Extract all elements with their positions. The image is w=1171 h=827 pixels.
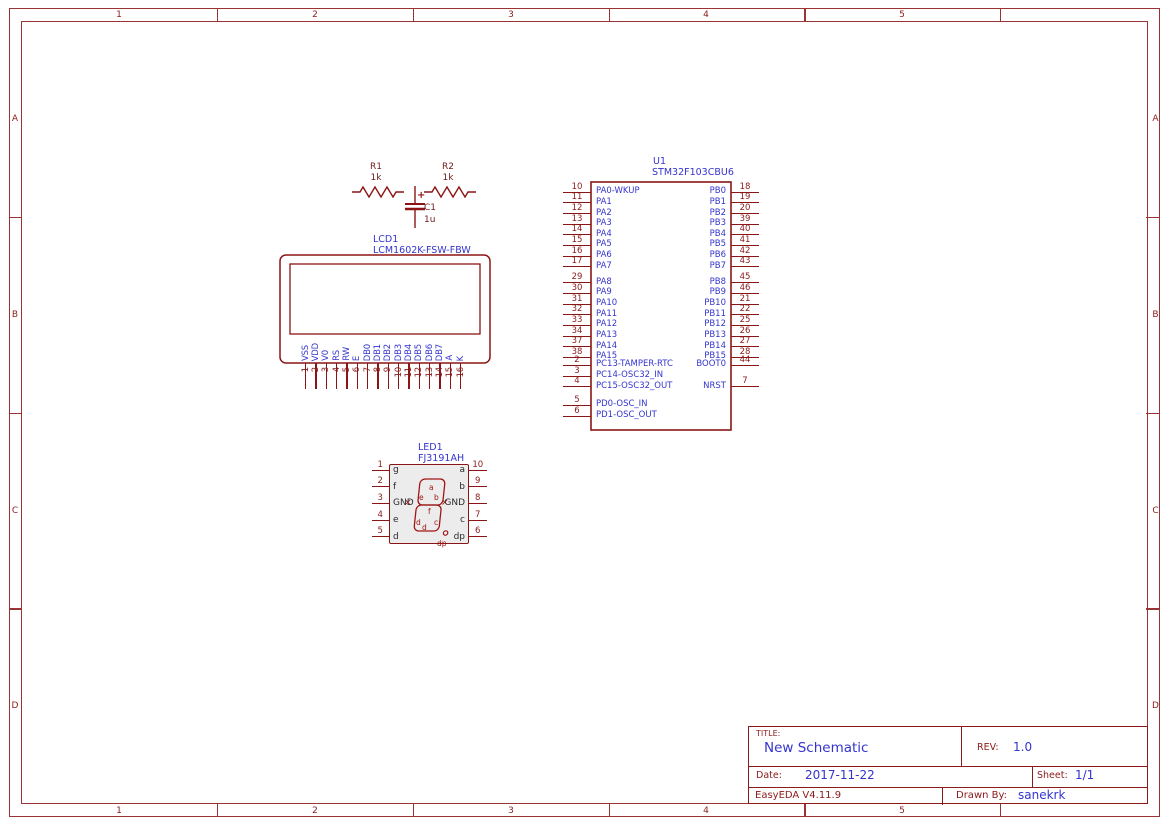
u1-pins-pb0-pb7: 18PB019PB120PB239PB340PB441PB542PB643PB7 (731, 182, 759, 267)
pin[interactable]: 9b (469, 471, 487, 488)
pin[interactable]: 22PB11 (731, 305, 759, 316)
pin[interactable]: 46PB9 (731, 283, 759, 294)
pin-name: PA13 (596, 331, 617, 340)
title-block-divider (942, 787, 943, 805)
lcd-pin[interactable]: VSS 1 (300, 318, 310, 390)
drawn-by-value[interactable]: sanekrk (1018, 788, 1065, 802)
pin[interactable]: 4PC15-OSC32_OUT (563, 377, 591, 388)
pin[interactable]: 25PB12 (731, 315, 759, 326)
pin-name: V0 (321, 350, 331, 361)
u1-pins-pb8-pb15: 45PB846PB921PB1022PB1125PB1226PB1327PB14… (731, 273, 759, 358)
pin-number: 17 (563, 257, 591, 267)
lcd-pin[interactable]: DB2 9 (383, 318, 393, 390)
pin-number: 2 (311, 367, 321, 372)
pin-name: PA4 (596, 230, 612, 239)
rev-value[interactable]: 1.0 (1013, 740, 1032, 754)
frame-col-label: 2 (305, 805, 325, 817)
pin-name: RW (342, 347, 352, 361)
pin[interactable]: 27PB14 (731, 337, 759, 348)
pin-number: 15 (445, 367, 455, 377)
frame-row-label: B (1149, 309, 1162, 321)
u1-pins-pa8-pa15: 29PA830PA931PA1032PA1133PA1234PA1337PA14… (563, 273, 591, 358)
pin-number: 25 (731, 316, 759, 326)
lcd-pin[interactable]: DB4 11 (404, 318, 414, 390)
pin[interactable]: 17PA7 (563, 257, 591, 268)
pin-name: VDD (311, 343, 321, 361)
frame-tick (413, 8, 414, 21)
pin-name: PB5 (710, 240, 726, 249)
pin-name: VSS (301, 345, 311, 361)
pin-number: 21 (731, 295, 759, 305)
frame-tick (413, 804, 414, 817)
pin-number: 4 (372, 511, 390, 521)
pin-name: PA1 (596, 198, 612, 207)
pin[interactable]: 16PA6 (563, 246, 591, 257)
pin-number: 5 (563, 396, 591, 406)
pin-name: PA6 (596, 251, 612, 260)
pin-name: PB13 (704, 331, 726, 340)
pin-number: 42 (731, 247, 759, 257)
pin-name: PC15-OSC32_OUT (596, 382, 672, 391)
pin-number: 6 (469, 527, 487, 537)
pin[interactable]: 8GND (469, 487, 487, 504)
frame-col-label: 2 (305, 9, 325, 21)
c1-refdes[interactable]: C1 (424, 203, 448, 213)
pin-name: e (393, 515, 399, 525)
pin[interactable]: 6PD1-OSC_OUT (563, 406, 591, 417)
frame-row-label: B (9, 309, 22, 321)
frame-row-label: C (1149, 505, 1162, 517)
pin-name: d (393, 532, 399, 542)
pin[interactable]: 3GND (372, 487, 390, 504)
frame-row-label: A (9, 113, 22, 125)
sheet-label: Sheet: (1037, 770, 1068, 781)
pin-name: A (445, 355, 455, 361)
pin[interactable]: 13PA3 (563, 214, 591, 225)
pin[interactable]: 4e (372, 504, 390, 521)
lcd-pin[interactable]: RS 4 (331, 318, 341, 390)
pin[interactable]: 19PB1 (731, 193, 759, 204)
tool-version: EasyEDA V4.11.9 (755, 790, 841, 801)
lcd-pin[interactable]: K 16 (455, 318, 465, 390)
pin-number: 9 (383, 367, 393, 372)
frame-tick (1146, 217, 1159, 218)
segment-label-f: f (428, 508, 431, 516)
pin-number: 9 (469, 477, 487, 487)
pin-number: 33 (563, 316, 591, 326)
drawn-by-label: Drawn By: (956, 790, 1007, 801)
pin[interactable]: 44BOOT0 (731, 355, 759, 366)
pin[interactable]: 15PA5 (563, 235, 591, 246)
pin[interactable]: 7NRST (731, 377, 759, 388)
pin-name: PD1-OSC_OUT (596, 411, 657, 420)
pin[interactable]: 40PB4 (731, 225, 759, 236)
pin-number: 5 (372, 527, 390, 537)
pin-number: 32 (563, 305, 591, 315)
pin-number: 2 (563, 356, 591, 366)
frame-col-label: 4 (696, 9, 716, 21)
pin-name: PB6 (710, 251, 726, 260)
pin-number: 3 (563, 367, 591, 377)
pin[interactable]: 5PD0-OSC_IN (563, 395, 591, 406)
segment-label-a: a (429, 484, 434, 492)
pin-name: DB7 (435, 344, 445, 361)
frame-tick (804, 804, 805, 817)
frame-col-label: 3 (501, 9, 521, 21)
pin-number: 7 (469, 511, 487, 521)
u1-pins-pa0-pa7: 10PA0-WKUP11PA112PA213PA314PA415PA516PA6… (563, 182, 591, 267)
pin-name: DB6 (425, 344, 435, 361)
pin[interactable]: 34PA13 (563, 326, 591, 337)
pin[interactable]: 45PB8 (731, 273, 759, 284)
pin[interactable]: 29PA8 (563, 273, 591, 284)
frame-tick (1000, 804, 1001, 817)
pin-name: PB11 (704, 310, 726, 319)
title-block-divider (961, 726, 962, 766)
pin-name: PA0-WKUP (596, 187, 640, 196)
r1-value[interactable]: 1k (356, 173, 396, 183)
rev-label: REV: (977, 742, 999, 753)
pin-number: 14 (563, 225, 591, 235)
led1-right-pins: 10a9b8GND7c6dp (469, 454, 487, 537)
frame-row-label: C (9, 505, 22, 517)
lcd-pin[interactable]: RW 5 (342, 318, 352, 390)
frame-col-label: 1 (109, 9, 129, 21)
pin-name: PB9 (710, 288, 726, 297)
led1-left-pins: 1g2f3GND4e5d (372, 454, 390, 537)
title-block-divider (1032, 766, 1033, 787)
pin-name: K (456, 356, 466, 361)
segment-label-d: d (416, 519, 421, 527)
pin-number: 14 (435, 367, 445, 377)
lcd-pin[interactable]: A 15 (445, 318, 455, 390)
pin-name: DB0 (363, 344, 373, 361)
no-connect-cross-left: × (404, 499, 412, 508)
pin-number: 46 (731, 284, 759, 294)
pin-number: 41 (731, 236, 759, 246)
pin-number: 3 (321, 367, 331, 372)
frame-tick (1146, 413, 1159, 414)
frame-tick (9, 413, 21, 414)
pin-name: DB5 (414, 344, 424, 361)
pin-number: 8 (373, 367, 383, 372)
pin[interactable]: 2PC13-TAMPER-RTC (563, 355, 591, 366)
pin-number: 19 (731, 193, 759, 203)
pin[interactable]: 10PA0-WKUP (563, 182, 591, 193)
pin[interactable]: 3PC14-OSC32_IN (563, 366, 591, 377)
pin-name: PB10 (704, 299, 726, 308)
pin-name: DB3 (394, 344, 404, 361)
lcd-pin[interactable]: DB7 14 (435, 318, 445, 390)
pin-number: 11 (563, 193, 591, 203)
pin-name: NRST (703, 382, 726, 391)
pin-number: 1 (372, 461, 390, 471)
pin[interactable]: 26PB13 (731, 326, 759, 337)
frame-row-label: D (9, 700, 22, 712)
pin-number: 22 (731, 305, 759, 315)
title-label: TITLE: (756, 729, 780, 738)
pin[interactable]: 10a (469, 454, 487, 471)
frame-tick (1000, 8, 1001, 21)
frame-tick (609, 8, 610, 21)
segment-label-d-small: d (422, 524, 427, 532)
lcd-pin[interactable]: DB6 13 (424, 318, 434, 390)
pin[interactable]: 2f (372, 471, 390, 488)
lcd-pin[interactable]: DB5 12 (414, 318, 424, 390)
pin[interactable]: 33PA12 (563, 315, 591, 326)
pin-number: 12 (563, 204, 591, 214)
pin-number: 3 (372, 494, 390, 504)
u1-pin-boot0: 44BOOT0 (731, 355, 759, 366)
pin-number: 13 (563, 215, 591, 225)
pin-name: PB14 (704, 342, 726, 351)
frame-tick (609, 804, 610, 817)
pin[interactable]: 11PA1 (563, 193, 591, 204)
pin[interactable]: 6dp (469, 521, 487, 538)
schematic-canvas[interactable]: 1 2 3 4 5 1 2 3 4 5 A B C D A B C D R1 1… (0, 0, 1171, 827)
pin-number: 16 (563, 247, 591, 257)
date-value[interactable]: 2017-11-22 (805, 768, 875, 782)
pin-number: 43 (731, 257, 759, 267)
lcd-pins: VSS 1 VDD 2 V0 3 RS 4 (300, 318, 465, 390)
pin-number: 29 (563, 273, 591, 283)
pin-number: 31 (563, 295, 591, 305)
sheet-value[interactable]: 1/1 (1075, 768, 1094, 782)
pin-number: 34 (563, 327, 591, 337)
pin-number: 6 (352, 367, 362, 372)
pin-name: g (393, 465, 399, 475)
pin-name: RS (332, 350, 342, 361)
pin-name: PA14 (596, 342, 617, 351)
frame-tick (804, 8, 805, 21)
pin-name: PA10 (596, 299, 617, 308)
pin-number: 7 (731, 377, 759, 387)
lcd-pin[interactable]: E 6 (352, 318, 362, 390)
pin-name: PA8 (596, 278, 612, 287)
u1-pins-pc: 2PC13-TAMPER-RTC3PC14-OSC32_IN4PC15-OSC3… (563, 355, 591, 387)
date-label: Date: (756, 770, 782, 781)
frame-tick (217, 804, 218, 817)
lcd-pin[interactable]: DB0 7 (362, 318, 372, 390)
pin-number: 30 (563, 284, 591, 294)
r1-refdes[interactable]: R1 (356, 162, 396, 172)
pin[interactable]: 12PA2 (563, 203, 591, 214)
frame-col-label: 5 (892, 805, 912, 817)
pin-number: 8 (469, 494, 487, 504)
pin[interactable]: 5d (372, 521, 390, 538)
pin-name: PB8 (710, 278, 726, 287)
pin-name: PC13-TAMPER-RTC (596, 360, 673, 369)
u1-part-number[interactable]: STM32F103CBU6 (652, 167, 734, 178)
pin-number: 4 (332, 367, 342, 372)
segment-label-e: e (419, 494, 424, 502)
pin-number: 39 (731, 215, 759, 225)
pin-name: PA5 (596, 240, 612, 249)
pin[interactable]: 43PB7 (731, 257, 759, 268)
pin-name: PA3 (596, 219, 612, 228)
pin[interactable]: 30PA9 (563, 283, 591, 294)
pin-name: PA2 (596, 209, 612, 218)
schematic-title[interactable]: New Schematic (764, 740, 868, 756)
pin-number: 13 (425, 367, 435, 377)
pin-number: 18 (731, 183, 759, 193)
pin-number: 44 (731, 356, 759, 366)
pin-name: PD0-OSC_IN (596, 400, 648, 409)
frame-col-label: 5 (892, 9, 912, 21)
pin-name: PB12 (704, 320, 726, 329)
segment-label-dp: dp (437, 540, 447, 548)
u1-refdes[interactable]: U1 (653, 156, 666, 167)
frame-tick (217, 8, 218, 21)
pin-number: 20 (731, 204, 759, 214)
pin-name: BOOT0 (696, 360, 726, 369)
pin-name: PA7 (596, 262, 612, 271)
pin-number: 7 (363, 367, 373, 372)
pin-name: c (460, 515, 465, 525)
led1-refdes[interactable]: LED1 (418, 442, 443, 453)
lcd-pin[interactable]: DB3 10 (393, 318, 403, 390)
c1-polarity-plus: + (417, 191, 425, 201)
pin[interactable]: 41PB5 (731, 235, 759, 246)
pin[interactable]: 7c (469, 504, 487, 521)
frame-row-label: D (1149, 700, 1162, 712)
pin[interactable]: 20PB2 (731, 203, 759, 214)
r2-value[interactable]: 1k (428, 173, 468, 183)
pin-number: 4 (563, 377, 591, 387)
pin-number: 16 (456, 367, 466, 377)
pin[interactable]: 18PB0 (731, 182, 759, 193)
title-block-divider (748, 787, 1148, 788)
segment-label-c: c (434, 519, 438, 527)
resistor-symbol[interactable] (422, 184, 480, 200)
u1-pin-nrst: 7NRST (731, 377, 759, 388)
pin-name: f (393, 482, 396, 492)
pin-name: DB4 (404, 344, 414, 361)
segment-label-b: b (434, 494, 439, 502)
pin-number: 10 (563, 183, 591, 193)
pin[interactable]: 37PA14 (563, 337, 591, 348)
frame-col-label: 3 (501, 805, 521, 817)
frame-tick (9, 608, 21, 609)
pin[interactable]: 31PA10 (563, 294, 591, 305)
pin-name: PB4 (710, 230, 726, 239)
pin-name: PC14-OSC32_IN (596, 371, 663, 380)
frame-tick (1146, 608, 1159, 609)
pin-number: 1 (301, 367, 311, 372)
pin[interactable]: 21PB10 (731, 294, 759, 305)
pin-name: PA9 (596, 288, 612, 297)
u1-pins-pd: 5PD0-OSC_IN6PD1-OSC_OUT (563, 395, 591, 416)
pin-number: 40 (731, 225, 759, 235)
pin-number: 12 (414, 367, 424, 377)
pin[interactable]: 32PA11 (563, 305, 591, 316)
led1-part-number[interactable]: FJ3191AH (418, 453, 464, 464)
frame-row-label: A (1149, 113, 1162, 125)
pin-number: 26 (731, 327, 759, 337)
pin-number: 10 (394, 367, 404, 377)
pin-name: PA12 (596, 320, 617, 329)
pin-name: PA11 (596, 310, 617, 319)
frame-col-label: 1 (109, 805, 129, 817)
pin-name: DB2 (383, 344, 393, 361)
lcd-pin[interactable]: V0 3 (321, 318, 331, 390)
pin-name: PB3 (710, 219, 726, 228)
lcd1-refdes[interactable]: LCD1 (373, 234, 398, 245)
pin-name: PB7 (710, 262, 726, 271)
no-connect-cross-right: × (441, 499, 449, 508)
lcd-pin[interactable]: VDD 2 (311, 318, 321, 390)
pin[interactable]: 14PA4 (563, 225, 591, 236)
pin-number: 37 (563, 337, 591, 347)
pin-number: 11 (404, 367, 414, 377)
pin[interactable]: 39PB3 (731, 214, 759, 225)
pin-number: 45 (731, 273, 759, 283)
pin-name: E (352, 356, 362, 361)
c1-value[interactable]: 1u (424, 215, 448, 225)
pin-number: 5 (342, 367, 352, 372)
pin-name: PB2 (710, 209, 726, 218)
frame-tick (9, 217, 21, 218)
pin-number: 15 (563, 236, 591, 246)
lcd-pin[interactable]: DB1 8 (373, 318, 383, 390)
pin-name: PB0 (710, 187, 726, 196)
pin-name: PB1 (710, 198, 726, 207)
pin[interactable]: 42PB6 (731, 246, 759, 257)
title-block-divider (748, 766, 1148, 767)
pin-name: DB1 (373, 344, 383, 361)
pin-number: 10 (469, 461, 487, 471)
frame-col-label: 4 (696, 805, 716, 817)
r2-refdes[interactable]: R2 (428, 162, 468, 172)
pin-number: 6 (563, 407, 591, 417)
pin[interactable]: 1g (372, 454, 390, 471)
pin-number: 27 (731, 337, 759, 347)
pin-number: 2 (372, 477, 390, 487)
